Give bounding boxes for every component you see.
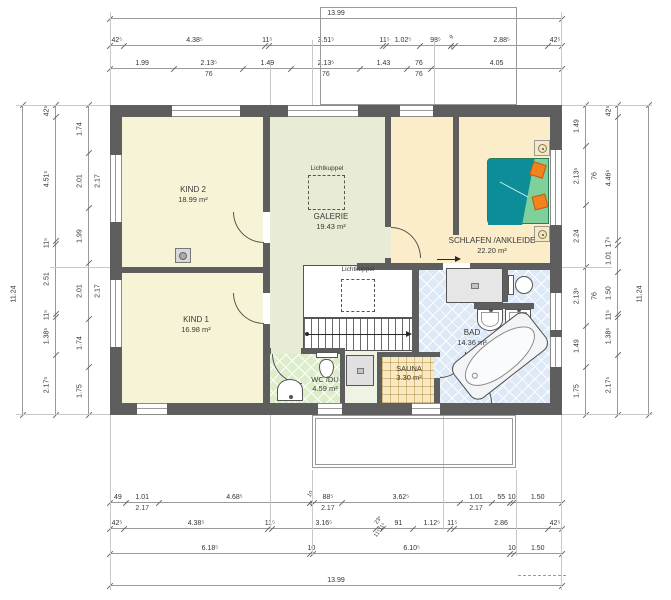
dim-label: 4.51⁵ bbox=[44, 171, 51, 188]
dim-tick bbox=[86, 412, 92, 418]
dim-label: 1.75 bbox=[77, 384, 84, 398]
wall bbox=[358, 105, 400, 117]
dim-tick bbox=[583, 364, 589, 370]
pillow bbox=[529, 161, 547, 179]
dim-col-left-2: 1.742.012.171.992.012.171.741.75 bbox=[88, 105, 89, 415]
wall bbox=[385, 117, 391, 227]
room-name: SCHLAFEN /ANKLEIDE bbox=[449, 236, 536, 246]
extension-line bbox=[312, 40, 313, 105]
dim-label: 11⁵ bbox=[447, 520, 457, 527]
dim-row-bottom-total: 13.99 bbox=[110, 585, 562, 586]
dim-tick bbox=[339, 500, 345, 506]
stair-walkline bbox=[306, 334, 408, 335]
extension-line bbox=[110, 12, 111, 105]
window bbox=[550, 293, 562, 330]
window bbox=[110, 280, 122, 347]
dim-label: 2.17⁵ bbox=[606, 377, 613, 394]
dim-label: 1.99 bbox=[77, 229, 84, 243]
dormer-outline-top bbox=[320, 7, 517, 105]
dim-label: 11⁵ bbox=[606, 310, 613, 320]
toilet-bowl bbox=[515, 276, 533, 294]
room-name: KIND 2 bbox=[178, 185, 208, 195]
dim-tick bbox=[559, 500, 565, 506]
wall bbox=[453, 117, 459, 235]
wall bbox=[240, 105, 288, 117]
dim-label: 1.74 bbox=[77, 122, 84, 136]
extension-line bbox=[110, 415, 111, 590]
window bbox=[172, 105, 240, 117]
wall bbox=[434, 378, 440, 403]
wall bbox=[110, 222, 122, 280]
window bbox=[137, 403, 167, 415]
dim-label: 4.68⁵ bbox=[226, 494, 243, 501]
dim-label: 1.75 bbox=[574, 384, 581, 398]
toilet-tank bbox=[316, 352, 338, 358]
bed bbox=[487, 158, 549, 224]
dim-tick bbox=[456, 500, 462, 506]
dim-label: 11⁵ bbox=[44, 310, 51, 320]
extension-line bbox=[561, 12, 562, 105]
room-area: 19.43 m² bbox=[314, 222, 349, 231]
dim-label: 6.18⁵ bbox=[202, 545, 219, 552]
dim-tick bbox=[583, 322, 589, 328]
dim-tick bbox=[86, 150, 92, 156]
wall bbox=[412, 263, 419, 352]
dim-label: 1.99 bbox=[135, 60, 149, 67]
dim-label: 10 bbox=[508, 494, 516, 501]
dim-tick bbox=[123, 500, 129, 506]
floor-plan-drawing: 13.99 42⁵4.38⁵11⁵3.51⁵11⁵1.02⁵98⁵92⁵2.88… bbox=[0, 0, 671, 600]
dim-label: 3.16⁵ bbox=[315, 520, 332, 527]
dim-tick bbox=[583, 143, 589, 149]
dim-label: 11⁵ bbox=[262, 37, 272, 44]
wall bbox=[263, 324, 270, 403]
nightstand bbox=[534, 226, 550, 242]
extension-line bbox=[562, 414, 652, 415]
dim-label: 1.38⁵ bbox=[44, 328, 51, 345]
dim-label: 11⁵ bbox=[44, 238, 51, 248]
extension-line bbox=[516, 470, 517, 556]
hidden-line bbox=[518, 575, 566, 576]
sliding-door-arrow bbox=[437, 259, 456, 260]
lamp-icon bbox=[538, 230, 547, 239]
dim-label: 4.38⁵ bbox=[188, 520, 205, 527]
extension-line bbox=[50, 267, 110, 268]
dim-tick bbox=[86, 260, 92, 266]
dim-label: 88⁵ bbox=[323, 494, 334, 501]
wall bbox=[167, 403, 318, 415]
room-name: BAD bbox=[457, 328, 487, 338]
dim-tick bbox=[559, 583, 565, 589]
dim-label: 1.49 bbox=[261, 60, 275, 67]
dim-tick bbox=[410, 526, 416, 532]
dim-tick bbox=[559, 66, 565, 72]
room-label-kind1: KIND 1 16.98 m² bbox=[181, 315, 211, 334]
room-label-schlafen: SCHLAFEN /ANKLEIDE 22.20 m² bbox=[449, 236, 536, 255]
dim-label: 1.49 bbox=[574, 339, 581, 353]
window bbox=[550, 337, 562, 367]
dim-label: 42⁵ bbox=[112, 520, 123, 527]
dim-label: 76 bbox=[592, 172, 599, 180]
dim-row-bottom-2: 42⁵4.38⁵11⁵3.16⁵23⁵11⁵11⁵911.12⁵11⁵2.864… bbox=[110, 528, 562, 529]
room-area: 22.20 m² bbox=[449, 246, 536, 255]
dim-label: 2.01 bbox=[77, 174, 84, 188]
dim-label: 42⁵ bbox=[550, 520, 561, 527]
dim-row-bottom-3: 6.18⁵106.10⁵101.50 bbox=[110, 553, 562, 554]
dim-tick bbox=[53, 114, 59, 120]
dim-label: 2.51 bbox=[44, 272, 51, 286]
dim-tick bbox=[615, 114, 621, 120]
dim-tick bbox=[86, 205, 92, 211]
skylight-stair bbox=[341, 279, 375, 312]
dim-label: 2.17⁵ bbox=[44, 377, 51, 394]
window bbox=[550, 150, 562, 225]
dim-tick bbox=[615, 269, 621, 275]
stair-walkline-start bbox=[305, 332, 309, 336]
room-label-galerie: GALERIE 19.43 m² bbox=[314, 212, 349, 231]
dim-col-right-2: 42⁵4.46⁵17⁵1.011.5011⁵1.38⁵2.17⁵ bbox=[617, 105, 618, 415]
wall bbox=[263, 117, 270, 212]
dim-tick bbox=[53, 412, 59, 418]
dim-tick bbox=[20, 412, 26, 418]
wall bbox=[377, 352, 440, 357]
room-label-sauna: SAUNA 3.30 m² bbox=[396, 364, 422, 383]
window bbox=[318, 403, 342, 415]
wall bbox=[550, 105, 562, 150]
dim-label: 42⁵ bbox=[550, 37, 561, 44]
wall bbox=[110, 105, 122, 155]
dim-label: 1.50 bbox=[531, 494, 545, 501]
smoke-detector-icon bbox=[179, 252, 187, 260]
dim-label: 6.10⁵ bbox=[403, 545, 420, 552]
room-label-kind2: KIND 2 18.99 m² bbox=[178, 185, 208, 204]
wall bbox=[263, 348, 271, 354]
room-name: GALERIE bbox=[314, 212, 349, 222]
wall bbox=[377, 352, 382, 403]
dim-label: 1.49 bbox=[574, 119, 581, 133]
dim-label: 2.13⁵ bbox=[201, 60, 218, 67]
shower-drain-icon bbox=[357, 368, 364, 374]
faucet-icon bbox=[489, 308, 493, 312]
wall bbox=[342, 403, 412, 415]
room-area: 16.98 m² bbox=[181, 325, 211, 334]
dim-label: 2.13⁵ bbox=[574, 167, 581, 184]
dim-label: 1.38⁵ bbox=[606, 328, 613, 345]
dim-label: 3.62⁵ bbox=[393, 494, 410, 501]
smoke-detector bbox=[175, 248, 191, 263]
dim-label: 91 bbox=[395, 520, 403, 527]
dim-col-left-total: 11.24 bbox=[22, 105, 23, 415]
toilet-tank bbox=[508, 275, 514, 295]
dim-tick bbox=[615, 412, 621, 418]
dim-col-right-1: 1.492.13⁵762.242.13⁵761.491.75 bbox=[585, 105, 586, 415]
shower-bad bbox=[446, 268, 503, 303]
dim-tick bbox=[171, 66, 177, 72]
room-area: 3.30 m² bbox=[396, 373, 422, 382]
dim-label: 1.50 bbox=[606, 286, 613, 300]
shower-corridor bbox=[346, 355, 374, 386]
terrace-outline-bottom-inner bbox=[315, 418, 513, 465]
dim-label: 17⁵ bbox=[606, 237, 613, 248]
skylight-galerie bbox=[308, 175, 345, 210]
room-name: KIND 1 bbox=[181, 315, 211, 325]
skylight-stair-label: Lichtkuppel bbox=[342, 266, 375, 273]
dim-row-bottom-1: 491.012.174.68⁵103²88⁵2.173.62⁵1.012.175… bbox=[110, 502, 562, 503]
dim-col-left-1: 42⁵4.51⁵11⁵2.5111⁵1.38⁵2.17⁵ bbox=[55, 105, 56, 415]
extension-line bbox=[16, 414, 110, 415]
extension-line bbox=[562, 267, 612, 268]
dim-label: 2.17 bbox=[95, 174, 102, 188]
wall bbox=[110, 403, 137, 415]
dim-label: 4.46⁵ bbox=[606, 170, 613, 187]
dim-label: 42⁵ bbox=[112, 37, 123, 44]
dim-label: 11⁵11⁵ bbox=[374, 523, 388, 539]
dim-tick bbox=[86, 364, 92, 370]
dim-label: 2.17 bbox=[321, 505, 335, 512]
dim-label: 42⁵ bbox=[606, 105, 613, 116]
wall bbox=[340, 348, 345, 403]
dim-tick bbox=[288, 66, 294, 72]
extension-line bbox=[561, 415, 562, 590]
wall bbox=[433, 105, 562, 117]
dim-label: 2.86 bbox=[494, 520, 508, 527]
dim-tick bbox=[240, 66, 246, 72]
dim-label: 1.12⁵ bbox=[424, 520, 441, 527]
wall bbox=[550, 330, 562, 337]
dim-tick bbox=[646, 412, 652, 418]
dim-label: 10 bbox=[508, 545, 516, 552]
room-area: 18.99 m² bbox=[178, 195, 208, 204]
window bbox=[288, 105, 358, 117]
dim-label: 1.50 bbox=[531, 545, 545, 552]
dim-label: 2.13⁵ bbox=[574, 288, 581, 305]
extension-line bbox=[270, 415, 271, 530]
dim-label: 2.24 bbox=[574, 229, 581, 243]
dim-label: 1.01 bbox=[135, 494, 149, 501]
dim-label: 55 bbox=[497, 494, 505, 501]
window bbox=[400, 105, 433, 117]
dim-label: 11.24 bbox=[11, 286, 18, 303]
room-area: 4.59 m² bbox=[311, 384, 339, 393]
dim-tick bbox=[615, 352, 621, 358]
room-label-bad: BAD 14.36 m² bbox=[457, 328, 487, 347]
nightstand bbox=[534, 140, 550, 156]
dim-tick bbox=[583, 412, 589, 418]
dim-label: 2.17 bbox=[95, 284, 102, 298]
shower-drain-icon bbox=[471, 283, 479, 289]
dim-tick bbox=[86, 316, 92, 322]
dim-tick bbox=[53, 352, 59, 358]
dim-label: 76 bbox=[205, 71, 213, 78]
dim-tick bbox=[559, 16, 565, 22]
extension-line bbox=[16, 105, 110, 106]
faucet-icon bbox=[289, 395, 293, 399]
room-label-wc: WC /DU 4.59 m² bbox=[311, 375, 339, 394]
sink-wc bbox=[277, 379, 303, 401]
extension-line bbox=[270, 60, 271, 105]
room-name: WC /DU bbox=[311, 375, 339, 384]
dim-label: 2.17 bbox=[135, 505, 149, 512]
dim-tick bbox=[559, 551, 565, 557]
extension-line bbox=[312, 470, 313, 556]
wall bbox=[440, 403, 562, 415]
dim-label: 2.01 bbox=[77, 284, 84, 298]
room-area: 14.36 m² bbox=[457, 338, 487, 347]
dim-label: 76 bbox=[592, 292, 599, 300]
dim-label: 13.99 bbox=[327, 577, 345, 584]
dim-label: 2.17 bbox=[469, 505, 483, 512]
dim-tick bbox=[155, 500, 161, 506]
dim-label: 1.74 bbox=[77, 336, 84, 350]
window bbox=[412, 403, 440, 415]
dim-label: 42⁵ bbox=[44, 106, 51, 117]
dim-label: 11.24 bbox=[637, 286, 644, 303]
extension-line bbox=[562, 105, 652, 106]
dim-label: 1.01 bbox=[469, 494, 483, 501]
dim-tick bbox=[583, 202, 589, 208]
dim-tick bbox=[489, 500, 495, 506]
dim-label: 1.01 bbox=[606, 252, 613, 266]
dim-label: 4.38⁵ bbox=[186, 37, 203, 44]
pillow bbox=[532, 194, 549, 211]
dim-col-right-total: 11.24 bbox=[648, 105, 649, 415]
window bbox=[110, 155, 122, 222]
sliding-door-arrowhead bbox=[455, 256, 461, 262]
lamp-icon bbox=[538, 144, 547, 153]
toilet-bad bbox=[508, 273, 534, 297]
wall bbox=[122, 267, 270, 273]
wall bbox=[550, 225, 562, 293]
skylight-galerie-label: Lichtkuppel bbox=[311, 165, 344, 172]
dim-label: 49 bbox=[114, 494, 122, 501]
room-name: SAUNA bbox=[396, 364, 422, 373]
